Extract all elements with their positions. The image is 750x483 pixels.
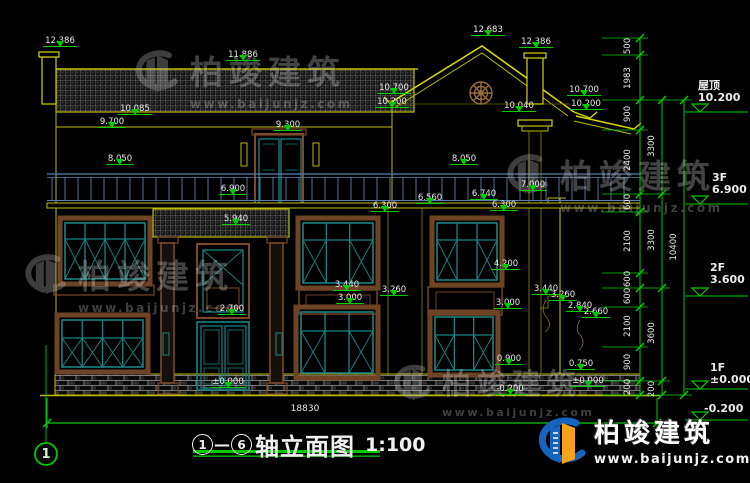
dimension-ticks — [602, 34, 692, 399]
dimension-label: 1983 — [623, 67, 633, 89]
elevation-marker: 6.300 — [371, 201, 399, 222]
elevation-marker: ±0.000 — [210, 377, 245, 398]
window — [430, 312, 498, 375]
title-text: 轴立面图 — [255, 427, 355, 462]
elevation-marker: 0.900 — [495, 354, 523, 375]
elevation-marker: 12.386 — [519, 37, 553, 58]
window — [298, 218, 378, 288]
elevation-marker: 6.560 — [416, 193, 444, 214]
elevation-marker: 11.886 — [226, 50, 260, 71]
elevation-marker: ±0.000 — [570, 376, 605, 397]
elevation-marker: -0.200 — [494, 384, 525, 405]
floor-level-label: 1F±0.000 — [710, 362, 750, 386]
dimension-label: 10400 — [669, 233, 679, 260]
elevation-marker: 10.200 — [375, 97, 409, 118]
dimension-label: 900 — [623, 354, 633, 370]
elevation-marker: 6.900 — [219, 184, 247, 205]
axis-end-bubble: 6 — [231, 434, 252, 455]
brand-url: www.baijunjz.com — [594, 452, 750, 467]
elevation-marker: 12.683 — [471, 25, 505, 46]
elevation-marker: 12.386 — [43, 36, 77, 57]
elevation-marker: 10.200 — [569, 99, 603, 120]
elevation-marker: 8.050 — [450, 154, 478, 175]
elevation-marker: 3.260 — [380, 285, 408, 306]
elevation-marker: 2.700 — [218, 304, 246, 325]
dimension-label: 200 — [623, 379, 633, 395]
dimension-label: 600 — [623, 288, 633, 304]
dimension-label: 3300 — [647, 229, 657, 251]
floor-level-label: 3F6.900 — [712, 172, 747, 196]
elevation-marker: 2.660 — [582, 307, 610, 328]
brand-title: 柏竣建筑 — [594, 413, 750, 450]
dimension-label: 200 — [647, 381, 657, 397]
axis-start-bubble: 1 — [192, 434, 213, 455]
dimension-label: 3600 — [647, 322, 657, 344]
axis-bubble-1: 1 — [41, 447, 50, 462]
gable-round-ornament — [470, 82, 492, 104]
elevation-marker: 8.050 — [106, 154, 134, 175]
axis-dash: — — [214, 435, 230, 454]
dimension-label: 2100 — [623, 230, 633, 252]
elevation-marker: 3.000 — [494, 298, 522, 319]
dimension-label: 2400 — [623, 149, 633, 171]
elevation-drawing — [0, 0, 750, 483]
floor-level-label: 屋顶10.200 — [698, 80, 740, 104]
elevation-marker: 7.000 — [519, 180, 547, 201]
window — [60, 218, 150, 284]
cad-elevation-screenshot: 柏竣建筑 www.baijunjz.com 柏竣建筑 www.baijunjz.… — [0, 0, 750, 483]
drawing-title: 1 — 6 轴立面图 1:100 — [192, 427, 425, 462]
dimension-label: 600 — [623, 271, 633, 287]
balcony-railing — [47, 174, 640, 208]
elevation-marker: 3.000 — [336, 293, 364, 314]
elevation-marker: 4.200 — [492, 259, 520, 280]
dimension-label: 2100 — [623, 315, 633, 337]
dimension-label: 3300 — [647, 135, 657, 157]
floor-level-label: 2F3.600 — [710, 262, 745, 286]
brand-logo: 柏竣建筑 www.baijunjz.com — [528, 413, 750, 475]
window — [57, 315, 148, 372]
window — [296, 307, 378, 378]
elevation-marker: 5.940 — [222, 214, 250, 235]
elevation-marker: 10.040 — [502, 101, 536, 122]
left-roof-band — [50, 69, 418, 112]
title-scale: 1:100 — [365, 434, 425, 456]
elevation-marker: 9.300 — [274, 120, 302, 141]
brand-logo-icon — [528, 413, 588, 475]
dimension-label: 500 — [623, 38, 633, 54]
dimension-label: 600 — [623, 194, 633, 210]
elevation-marker: 6.300 — [490, 200, 518, 221]
dimension-label: 900 — [623, 106, 633, 122]
elevation-marker: 9.700 — [98, 117, 126, 138]
total-width-dimension: 18830 — [272, 404, 338, 414]
